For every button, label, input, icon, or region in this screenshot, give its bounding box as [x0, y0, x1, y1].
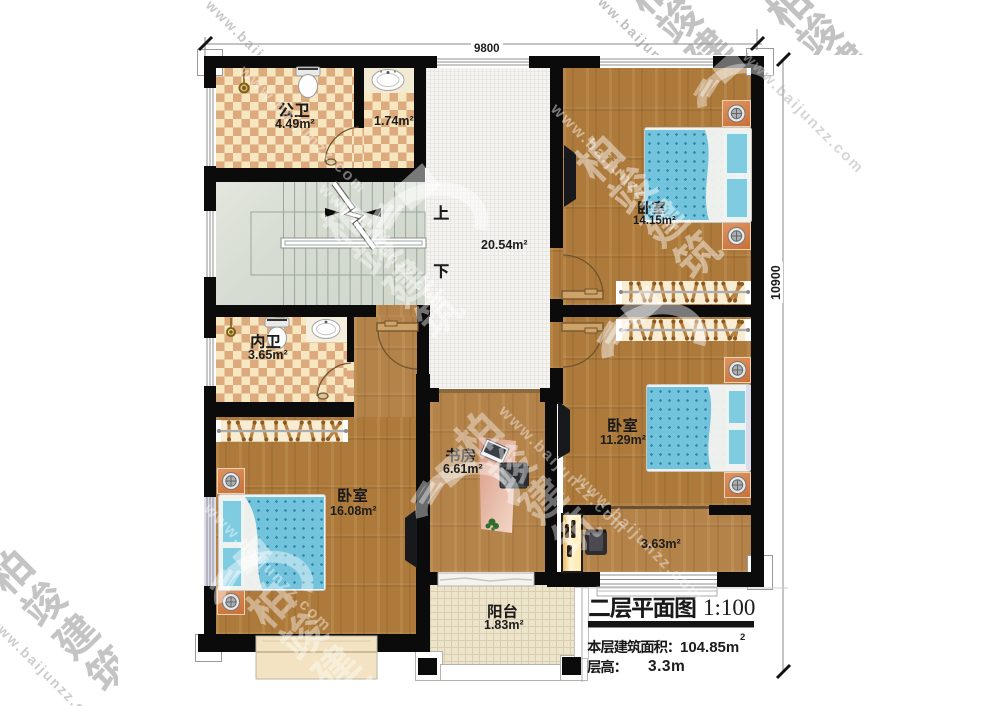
svg-text:www.baijunzz.com: www.baijunzz.com: [0, 612, 107, 706]
svg-text:www.baijunzz.com: www.baijunzz.com: [738, 48, 867, 177]
